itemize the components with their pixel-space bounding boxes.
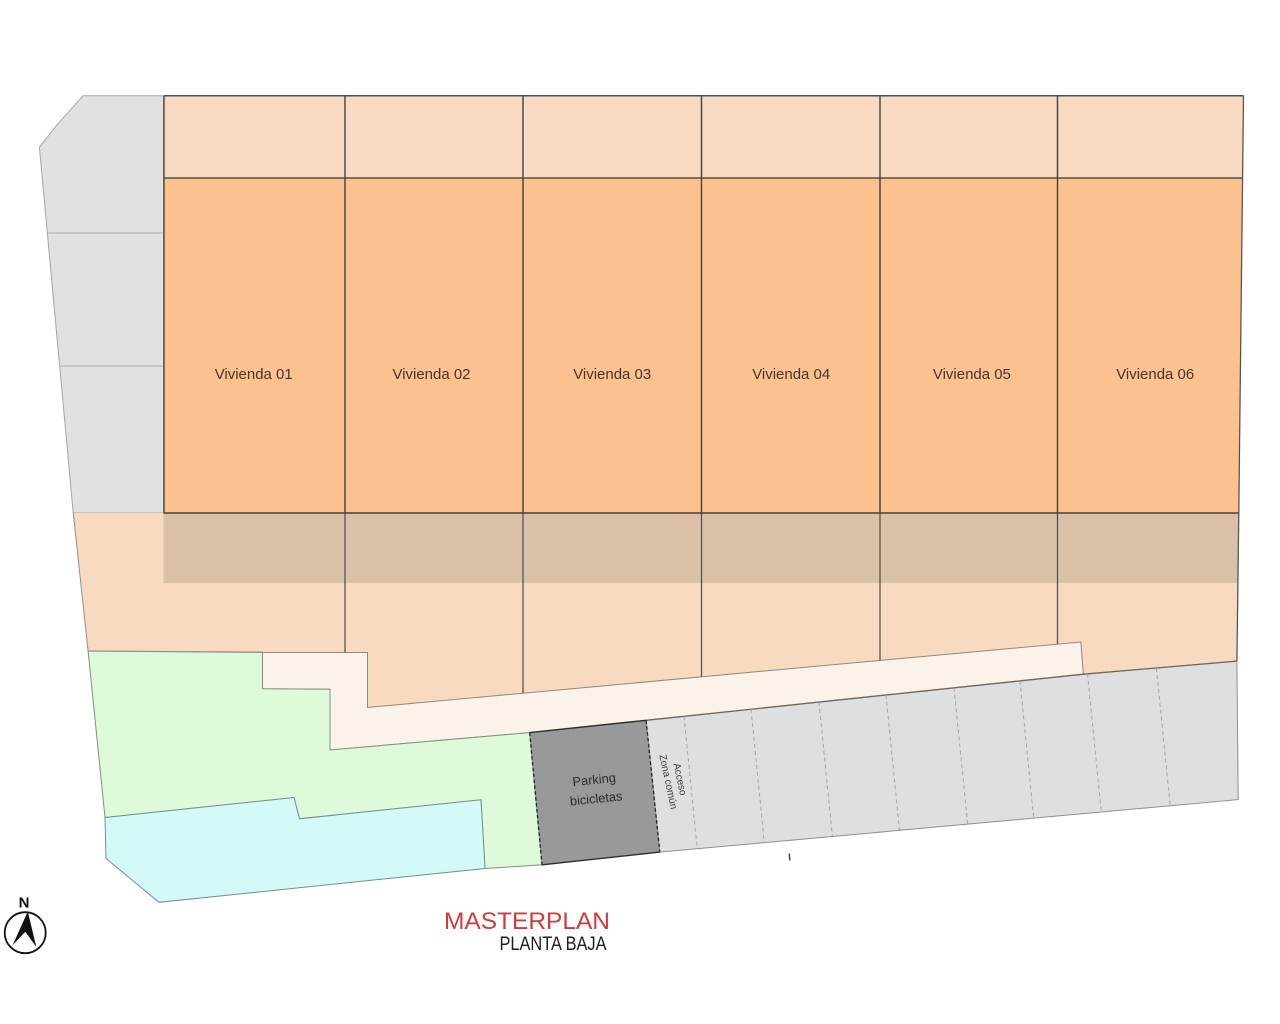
svg-text:Vivienda 04: Vivienda 04 — [752, 366, 830, 383]
svg-text:Vivienda 03: Vivienda 03 — [573, 366, 651, 383]
svg-text:Vivienda 05: Vivienda 05 — [933, 366, 1011, 383]
svg-text:PLANTA BAJA: PLANTA BAJA — [500, 934, 607, 955]
svg-text:Vivienda 01: Vivienda 01 — [215, 366, 293, 383]
svg-text:MASTERPLAN: MASTERPLAN — [444, 908, 610, 935]
svg-text:Vivienda 02: Vivienda 02 — [393, 366, 471, 383]
svg-text:N: N — [19, 895, 30, 912]
svg-text:Vivienda 06: Vivienda 06 — [1116, 366, 1194, 383]
